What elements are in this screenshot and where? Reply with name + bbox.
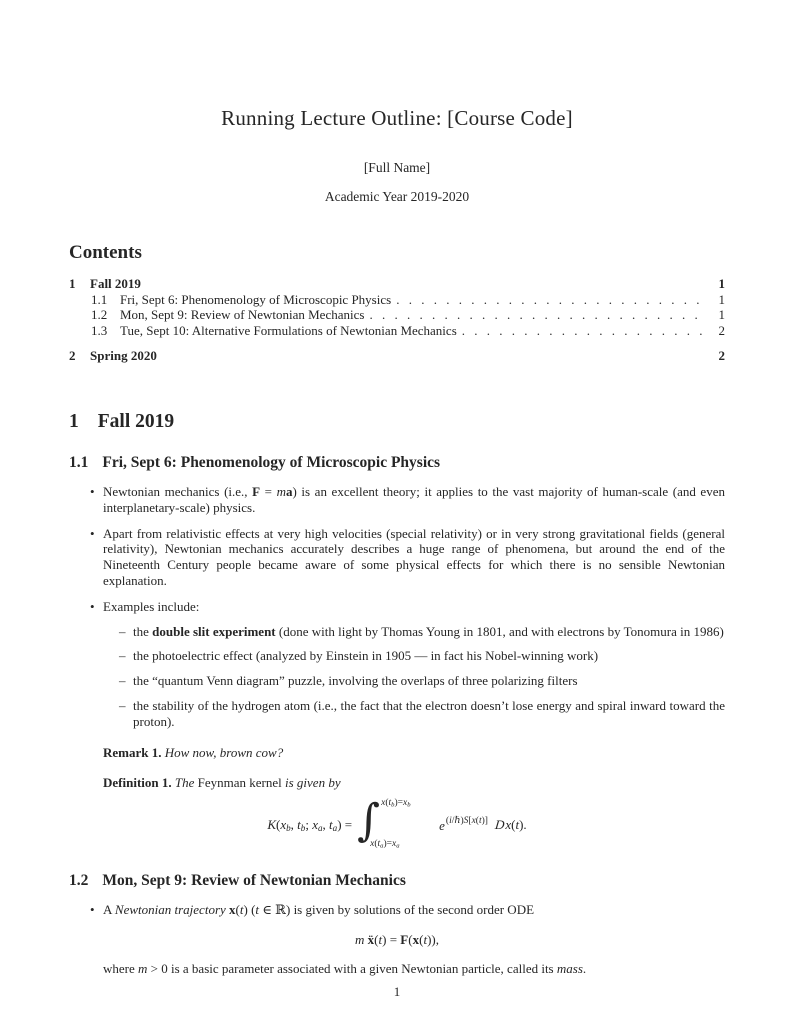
bullet-list: • Newtonian mechanics (i.e., F = ma) is … <box>69 484 725 851</box>
sub-bullet-photoelectric: – the photoelectric effect (analyzed by … <box>69 648 725 664</box>
table-of-contents: 1 Fall 2019 1 1.1 Fri, Sept 6: Phenomeno… <box>69 276 725 364</box>
dash-marker: – <box>119 673 126 689</box>
toc-entry-1-2[interactable]: 1.2 Mon, Sept 9: Review of Newtonian Mec… <box>69 307 725 323</box>
newton-ode-equation: m ẍ(t) = F(x(t)), <box>69 932 725 948</box>
dash-marker: – <box>119 624 126 640</box>
toc-entry-page: 2 <box>711 348 725 364</box>
toc-entry-spring-2020[interactable]: 2 Spring 2020 2 <box>69 348 725 364</box>
dash-marker: – <box>119 698 126 714</box>
definition-paragraph: Definition 1. The Feynman kernel is give… <box>69 775 725 791</box>
sub-bullet-text: the photoelectric effect (analyzed by Ei… <box>133 648 598 663</box>
bullet-item-relativistic-effects: • Apart from relativistic effects at ver… <box>69 526 725 589</box>
bullet-text: Apart from relativistic effects at very … <box>103 526 725 588</box>
author-name: [Full Name] <box>69 160 725 176</box>
sub-bullet-text: the stability of the hydrogen atom (i.e.… <box>133 698 725 729</box>
section-heading-fall-2019: 1Fall 2019 <box>69 411 725 433</box>
section-number: 1 <box>69 411 79 432</box>
bullet-item-newtonian-trajectory: • A Newtonian trajectory x(t) (t ∈ ℝ) is… <box>69 902 725 919</box>
bullet-marker: • <box>90 599 95 615</box>
bullet-item-examples-include: • Examples include: <box>69 599 725 615</box>
page-footer: 1 <box>0 984 794 1000</box>
toc-entry-fall-2019[interactable]: 1 Fall 2019 1 <box>69 276 725 292</box>
toc-entry-page: 2 <box>711 323 725 339</box>
sub-bullet-text: the double slit experiment (done with li… <box>133 624 724 639</box>
feynman-kernel-equation: K(xb, tb; xa, ta) = ∫ x(tb)=xb x(ta)=xa … <box>69 795 725 851</box>
exponent: (i/ℏ)S[x(t)] <box>446 816 488 826</box>
integral-upper-limit: x(tb)=xb <box>381 798 410 808</box>
section-title: Fall 2019 <box>98 411 174 432</box>
toc-entry-label: Spring 2020 <box>90 348 157 364</box>
sub-bullet-text: the “quantum Venn diagram” puzzle, invol… <box>133 673 578 688</box>
toc-dot-leader <box>369 307 706 323</box>
academic-year: Academic Year 2019-2020 <box>69 189 725 205</box>
toc-dot-leader <box>396 292 706 308</box>
exponential-base: e <box>439 818 445 833</box>
bullet-text: Examples include: <box>103 599 199 614</box>
equation-lhs: K(xb, tb; xa, ta) = <box>267 817 352 833</box>
subsection-heading-1-1: 1.1Fri, Sept 6: Phenomenology of Microsc… <box>69 454 725 472</box>
toc-entry-label: Mon, Sept 9: Review of Newtonian Mechani… <box>120 307 364 323</box>
toc-entry-number: 2 <box>69 348 90 364</box>
sub-bullet-quantum-venn: – the “quantum Venn diagram” puzzle, inv… <box>69 673 725 689</box>
bullet-text: Newtonian mechanics (i.e., F = ma) is an… <box>103 484 725 515</box>
sub-bullet-list: – the double slit experiment (done with … <box>69 624 725 730</box>
integral-lower-limit: x(ta)=xa <box>370 839 399 849</box>
bullet-marker: • <box>90 902 95 918</box>
path-integral-measure: Dx(t). <box>495 817 527 833</box>
toc-dot-leader <box>462 323 706 339</box>
document-title: Running Lecture Outline: [Course Code] <box>69 0 725 131</box>
toc-entry-page: 1 <box>711 276 725 292</box>
subsection-heading-1-2: 1.2Mon, Sept 9: Review of Newtonian Mech… <box>69 872 725 890</box>
subsection-title: Mon, Sept 9: Review of Newtonian Mechani… <box>102 872 406 889</box>
equation-integrand: e(i/ℏ)S[x(t)] <box>439 815 488 834</box>
contents-heading: Contents <box>69 242 725 264</box>
subsection-title: Fri, Sept 6: Phenomenology of Microscopi… <box>102 454 440 471</box>
bullet-marker: • <box>90 526 95 542</box>
toc-entry-label: Fall 2019 <box>90 276 141 292</box>
document-page: Running Lecture Outline: [Course Code] [… <box>0 0 794 1028</box>
dash-marker: – <box>119 648 126 664</box>
sub-bullet-double-slit: – the double slit experiment (done with … <box>69 624 725 640</box>
bullet-list-1-2: • A Newtonian trajectory x(t) (t ∈ ℝ) is… <box>69 902 725 977</box>
toc-entry-number: 1.3 <box>91 323 120 339</box>
remark-paragraph: Remark 1. How now, brown cow? <box>69 745 725 761</box>
bullet-text: A Newtonian trajectory x(t) (t ∈ ℝ) is g… <box>103 902 534 917</box>
toc-entry-page: 1 <box>711 292 725 308</box>
mass-definition-paragraph: where m > 0 is a basic parameter associa… <box>69 961 725 977</box>
toc-entry-1-1[interactable]: 1.1 Fri, Sept 6: Phenomenology of Micros… <box>69 292 725 308</box>
toc-entry-page: 1 <box>711 307 725 323</box>
toc-entry-label: Fri, Sept 6: Phenomenology of Microscopi… <box>120 292 391 308</box>
bullet-marker: • <box>90 484 95 500</box>
toc-entry-number: 1 <box>69 276 90 292</box>
toc-entry-1-3[interactable]: 1.3 Tue, Sept 10: Alternative Formulatio… <box>69 323 725 339</box>
toc-entry-number: 1.1 <box>91 292 120 308</box>
integral-block: ∫ x(tb)=xb x(ta)=xa <box>357 796 439 850</box>
toc-entry-number: 1.2 <box>91 307 120 323</box>
bullet-item-newtonian-mechanics: • Newtonian mechanics (i.e., F = ma) is … <box>69 484 725 516</box>
sub-bullet-hydrogen-atom: – the stability of the hydrogen atom (i.… <box>69 698 725 730</box>
subsection-number: 1.1 <box>69 454 88 471</box>
toc-entry-label: Tue, Sept 10: Alternative Formulations o… <box>120 323 457 339</box>
page-number: 1 <box>394 984 401 999</box>
subsection-number: 1.2 <box>69 872 88 889</box>
